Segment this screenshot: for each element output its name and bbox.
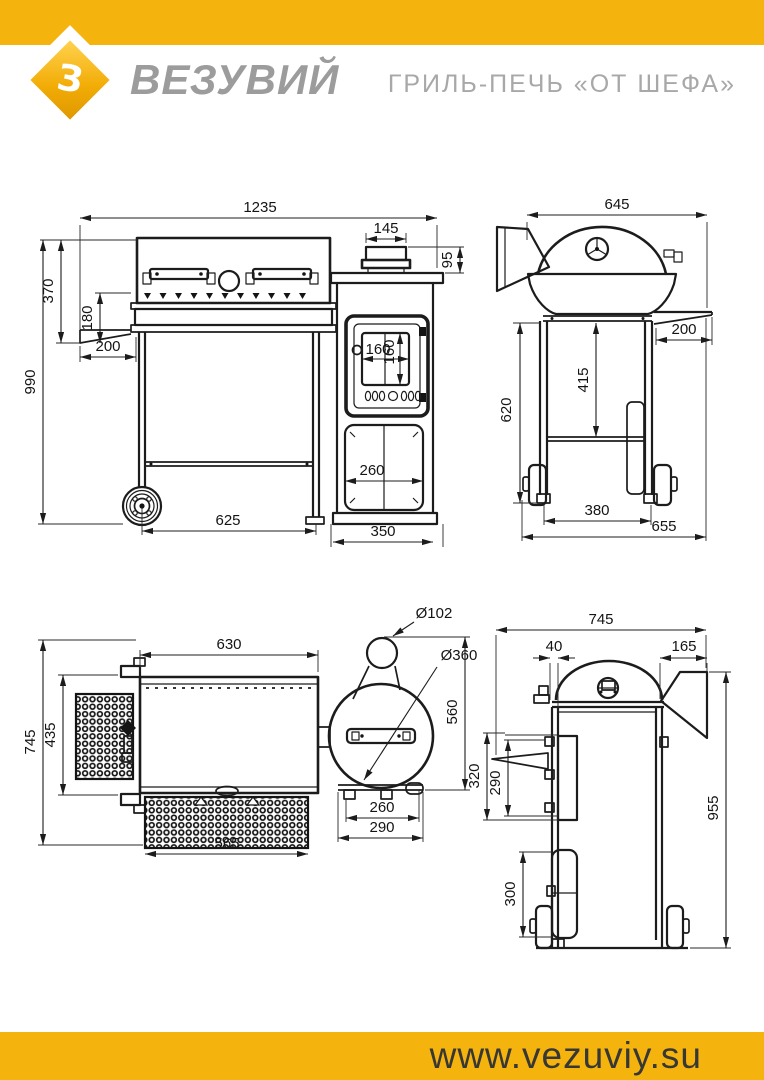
- lid-latch: [664, 250, 682, 262]
- dim-side2-shelf-top-height: 320: [466, 763, 483, 788]
- dim-front-firebox-width: 350: [370, 523, 395, 540]
- vent-triangles: [144, 293, 306, 299]
- dim-top-chimney-diameter: Ø102: [416, 605, 453, 622]
- dim-side-overall-depth: 655: [651, 518, 676, 535]
- door-air-vents: [365, 391, 420, 400]
- folding-shelf-side: [492, 736, 668, 820]
- spec-sheet-page: { "brand": {"name": "ВЕЗУВИЙ", "logo_let…: [0, 0, 764, 1080]
- website-url: www.vezuviy.su: [430, 1035, 702, 1077]
- dim-front-grate-height: 180: [79, 305, 96, 330]
- dim-top-base-inner: 260: [369, 799, 394, 816]
- dim-top-tray-width: 565: [214, 835, 239, 852]
- dim-top-overall-depth: 745: [22, 729, 39, 754]
- side-view2-drawing: 745 40 165 320 290 300 955: [466, 611, 731, 948]
- front-view-drawing: 1235 145 95 370 180 990 200 160 160 260 …: [22, 199, 464, 547]
- leg-foot: [306, 517, 324, 524]
- dim-side2-drawer-height: 300: [502, 881, 519, 906]
- dim-side-overall-width: 645: [604, 196, 629, 213]
- dim-front-glass-height: 160: [381, 339, 398, 364]
- dim-side2-chimney-width: 165: [671, 638, 696, 655]
- technical-drawing: 1235 145 95 370 180 990 200 160 160 260 …: [0, 0, 764, 1080]
- smoker-barrel-top: [318, 638, 433, 799]
- chimney-chute: [497, 227, 549, 291]
- wheels-side: [523, 465, 677, 505]
- wheels-side2: [530, 906, 689, 948]
- dim-front-chimney-height: 95: [439, 252, 456, 269]
- dim-front-chimney-width: 145: [373, 220, 398, 237]
- lid-damper: [586, 238, 608, 260]
- lid-handle-left: [143, 269, 215, 284]
- firebox-door: [346, 316, 428, 416]
- dim-top-shelf-width: 435: [42, 722, 59, 747]
- dim-side2-shelf-height: 290: [487, 770, 504, 795]
- top-view-drawing: 630 745 435 565 Ø102 Ø360 560 260 290: [22, 605, 477, 854]
- lid-damper-knob: [598, 678, 618, 698]
- dim-side2-overall-width: 745: [588, 611, 613, 628]
- dim-side-shelf-height: 415: [575, 367, 592, 392]
- dim-top-base-outer: 290: [369, 819, 394, 836]
- dim-side-shelf-depth: 200: [671, 321, 696, 338]
- hinge-latch: [534, 686, 549, 703]
- chimney-chute-right: [661, 672, 707, 738]
- thermometer-knob: [219, 271, 239, 291]
- dim-front-shelf-depth: 200: [95, 338, 120, 355]
- dim-top-barrel-diameter: Ø360: [441, 647, 478, 664]
- dim-top-barrel-depth: 560: [444, 699, 461, 724]
- dim-side-frame-height: 620: [498, 397, 515, 422]
- dim-side-wheel-track: 380: [584, 502, 609, 519]
- dim-front-overall-height: 990: [22, 369, 39, 394]
- dim-side2-overall-height: 955: [705, 795, 722, 820]
- chimney-stub: [362, 247, 410, 273]
- lid-handle-right: [246, 269, 318, 284]
- side-view-drawing: 645 200 415 620 380 655: [497, 196, 712, 541]
- dim-front-overall-width: 1235: [243, 199, 276, 216]
- dim-top-body-width: 630: [216, 636, 241, 653]
- dim-front-drawer-width: 260: [359, 462, 384, 479]
- dim-side2-offset: 40: [546, 638, 563, 655]
- dim-front-wheelbase: 625: [215, 512, 240, 529]
- bottom-accent-bar: www.vezuviy.su: [0, 1032, 764, 1080]
